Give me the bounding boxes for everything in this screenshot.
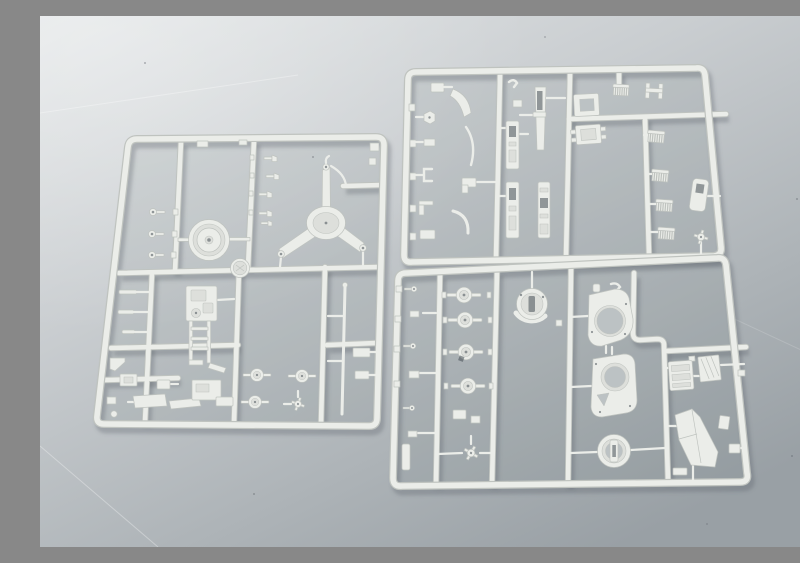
sprue-left bbox=[97, 137, 387, 431]
sprue-bottom-right bbox=[393, 258, 750, 491]
sprue-photo: Three light-gray injection-molded plasti… bbox=[40, 16, 800, 547]
runner-medallion bbox=[231, 259, 250, 278]
sprue-top-right bbox=[404, 68, 729, 267]
